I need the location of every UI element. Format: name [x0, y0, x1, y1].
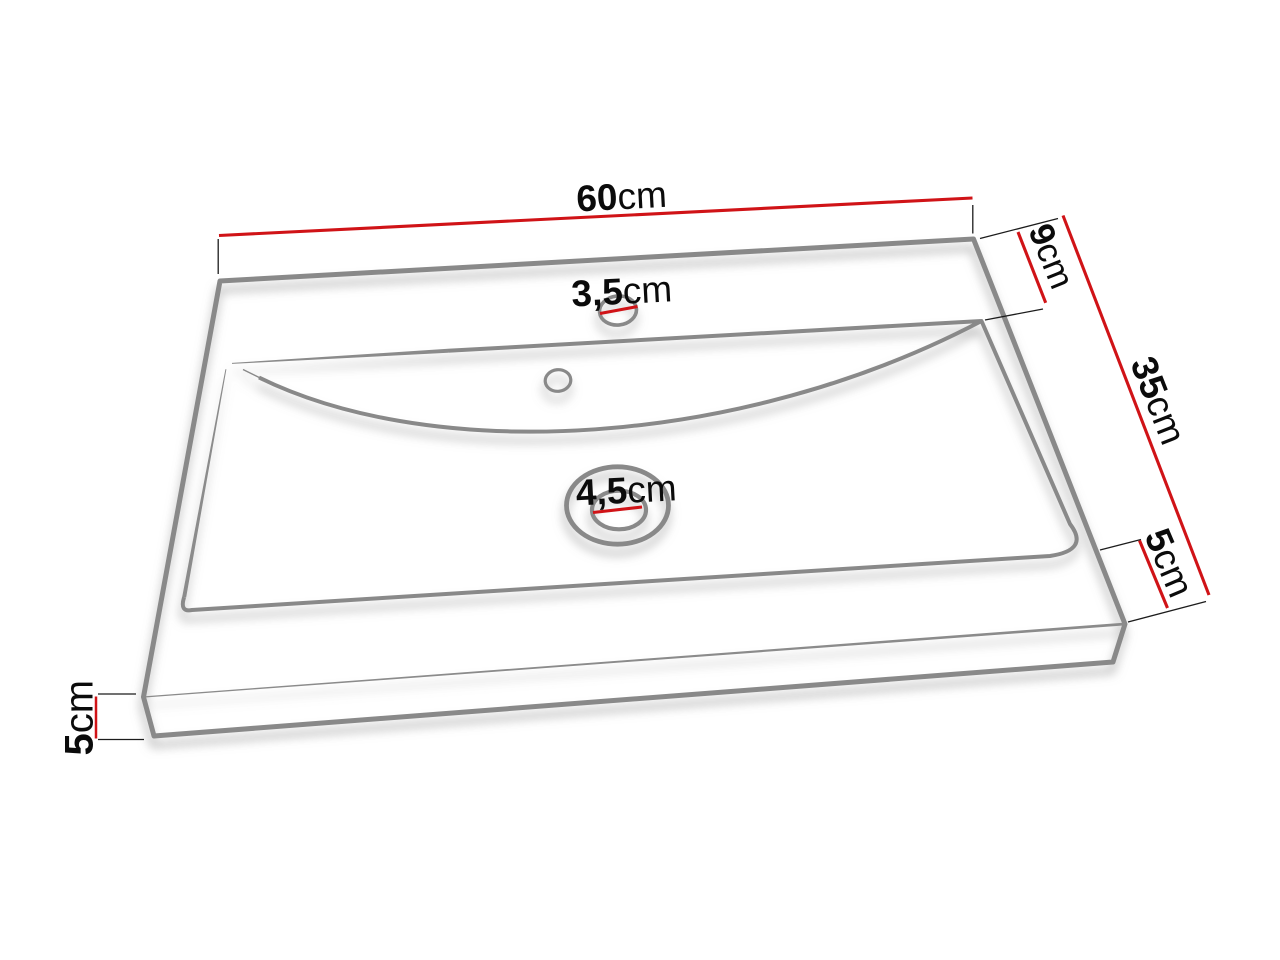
svg-text:3,5cm: 3,5cm — [570, 268, 673, 314]
svg-text:5cm: 5cm — [58, 680, 102, 756]
svg-text:60cm: 60cm — [575, 174, 668, 220]
svg-text:4,5cm: 4,5cm — [575, 467, 678, 513]
